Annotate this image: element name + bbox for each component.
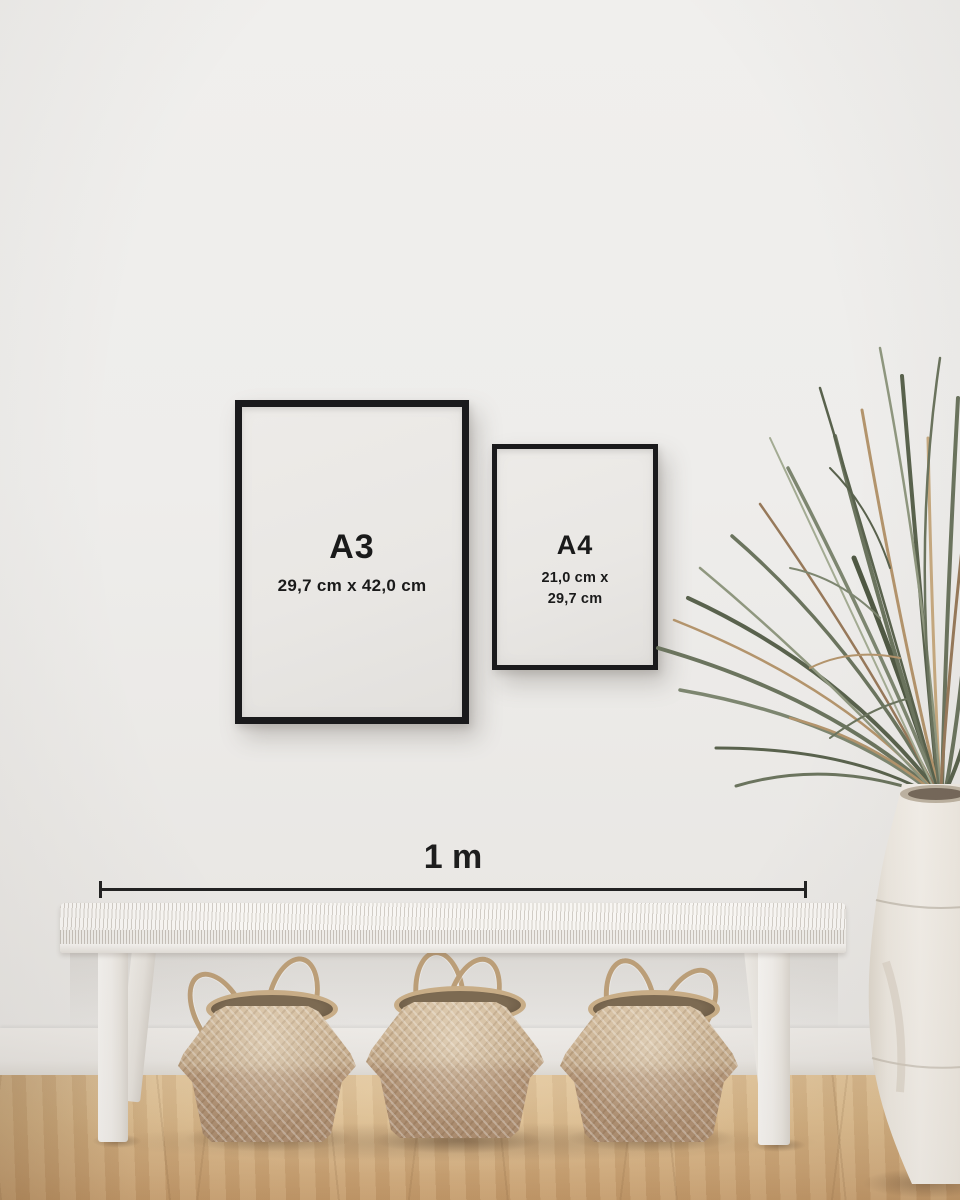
scale-line [99,888,807,891]
poster-a3-paper: A3 29,7 cm x 42,0 cm [242,407,462,717]
room-scene: A3 29,7 cm x 42,0 cm A4 21,0 cm x 29,7 c… [0,0,960,1200]
a3-text-block: A3 29,7 cm x 42,0 cm [278,528,427,596]
seagrass-basket [366,950,544,1138]
scale-label: 1 m [99,838,807,878]
scale-tick-right [804,881,807,898]
a4-dimensions: 21,0 cm x 29,7 cm [541,568,608,610]
bench-weave-front [60,930,846,944]
poster-frame-a3: A3 29,7 cm x 42,0 cm [235,400,469,724]
basket-body [178,1006,356,1142]
bench-leg-front-left [98,950,128,1142]
ceramic-vase [856,782,960,1194]
seagrass-basket [560,954,738,1142]
bench-weave-top [60,903,846,930]
a4-dimensions-line1: 21,0 cm x [541,568,608,589]
a4-dimensions-line2: 29,7 cm [541,589,608,610]
basket-body [560,1006,738,1142]
bench-leg-front-right [758,950,790,1145]
palm-plant [640,318,960,808]
a4-text-block: A4 21,0 cm x 29,7 cm [541,530,608,610]
poster-frame-a4: A4 21,0 cm x 29,7 cm [492,444,658,670]
bench-rail [60,944,846,953]
a3-size-label: A3 [278,528,427,567]
a3-dimensions: 29,7 cm x 42,0 cm [278,576,427,596]
basket-body [366,1002,544,1138]
scale-line-row [99,880,807,898]
seagrass-basket [178,954,356,1142]
a4-size-label: A4 [541,530,608,561]
bench-seat [60,903,846,953]
poster-a4-paper: A4 21,0 cm x 29,7 cm [497,449,653,665]
scale-bar: 1 m [99,838,807,898]
